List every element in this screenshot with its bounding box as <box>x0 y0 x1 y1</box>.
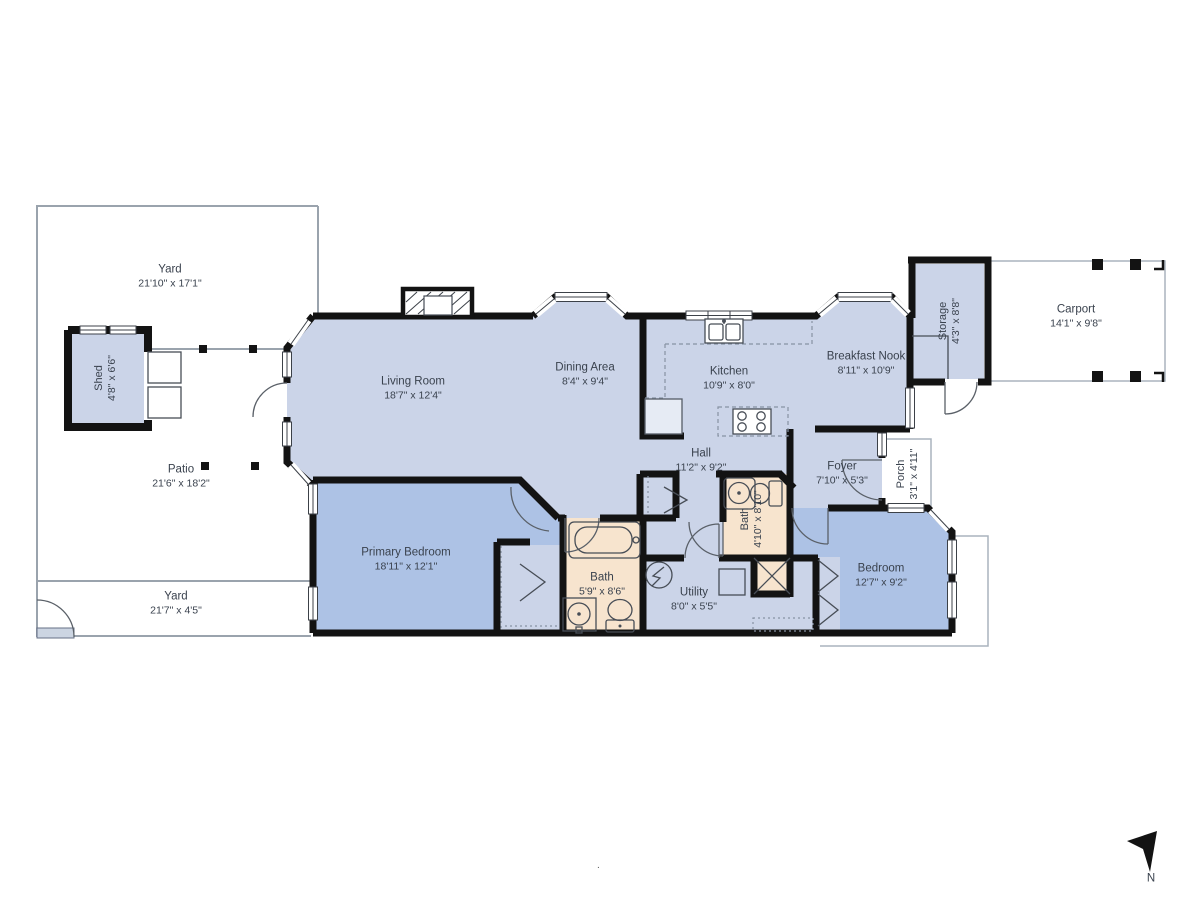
carport-post <box>1130 371 1141 382</box>
floorplan-page: Yard 21'10" x 17'1" Shed 4'8" x 6'6" Pat… <box>0 0 1200 900</box>
fence-post <box>249 345 257 353</box>
fridge-icon <box>645 399 682 434</box>
patio-post <box>201 462 209 470</box>
carport-outline <box>988 261 1165 381</box>
compass-north-icon <box>1127 831 1157 872</box>
carport-post <box>1092 371 1103 382</box>
shed-floor <box>72 334 144 423</box>
page-dot: . <box>597 860 600 871</box>
porch-outline <box>886 439 931 508</box>
patio-door-arc <box>253 383 287 417</box>
carport-post <box>1092 259 1103 270</box>
patio-post <box>251 462 259 470</box>
shed-door-leaf <box>148 387 181 418</box>
carport-post <box>1130 259 1141 270</box>
storage-door <box>945 382 977 414</box>
carport-corner-ticks <box>1154 260 1163 382</box>
kitchen-sink-icon <box>705 319 743 343</box>
yard-gate-slab <box>37 628 74 638</box>
fence-post <box>199 345 207 353</box>
fireplace-icon <box>403 289 472 317</box>
shed-door-leaf <box>148 352 181 383</box>
floorplan-drawing <box>0 0 1200 900</box>
